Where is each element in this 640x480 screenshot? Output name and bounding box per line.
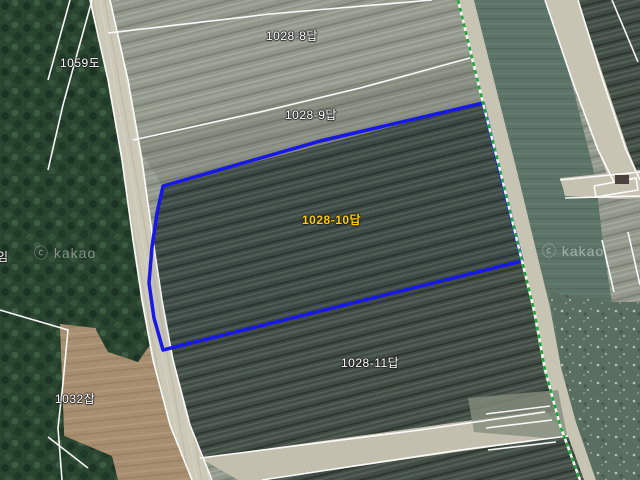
aerial-imagery	[0, 0, 640, 480]
vehicle	[615, 175, 629, 184]
map-canvas[interactable]: 1028-8답 1028-9답 1028-10답 1028-11답 1059도 …	[0, 0, 640, 480]
